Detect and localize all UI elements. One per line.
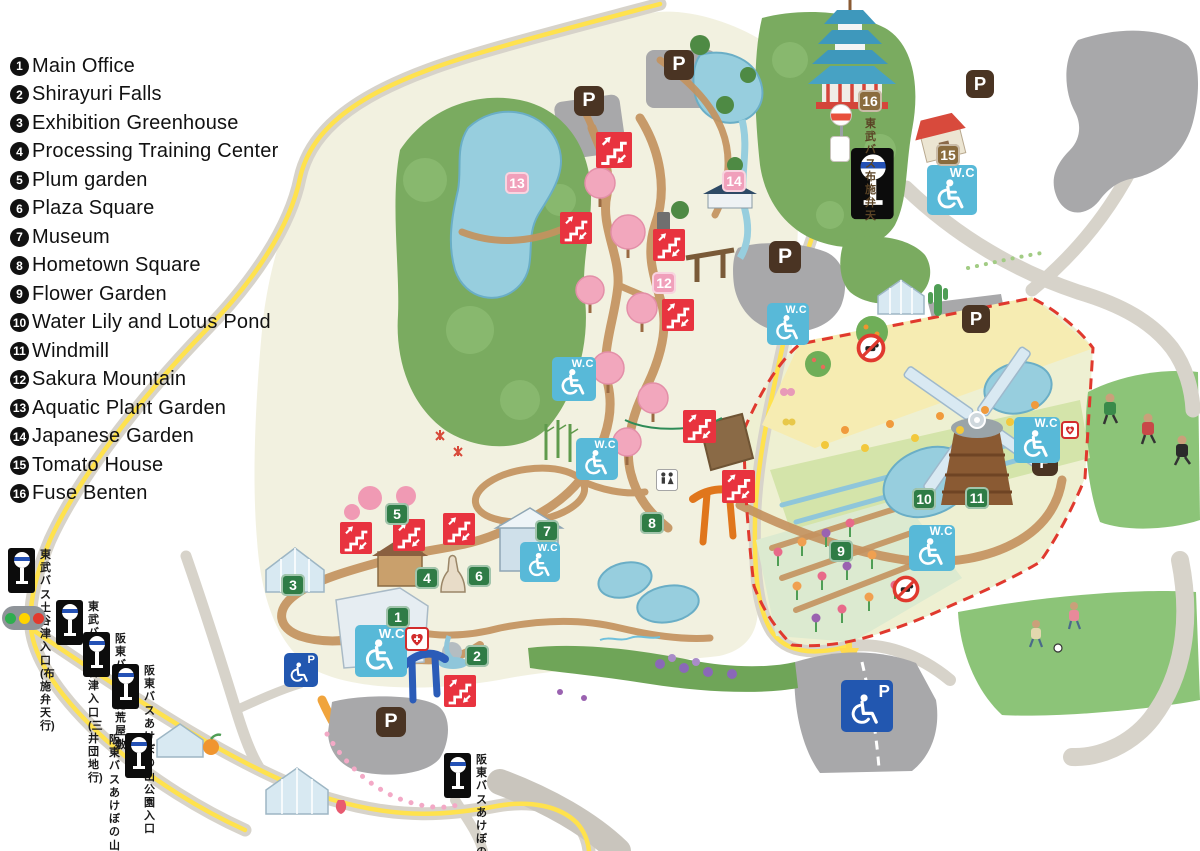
traffic-light-red (33, 613, 44, 624)
traffic-light-yellow (19, 613, 30, 624)
road-sign-disc (830, 104, 852, 126)
labels-layer (0, 0, 1200, 851)
road-sign-icon (830, 104, 852, 166)
traffic-light-green (5, 613, 16, 624)
road-sign-plate (830, 136, 850, 162)
traffic-light-icon (2, 606, 46, 630)
road-sign-pole (840, 126, 843, 136)
park-map: 1 Main Office 2 Shirayuri Falls 3 Exhibi… (0, 0, 1200, 851)
